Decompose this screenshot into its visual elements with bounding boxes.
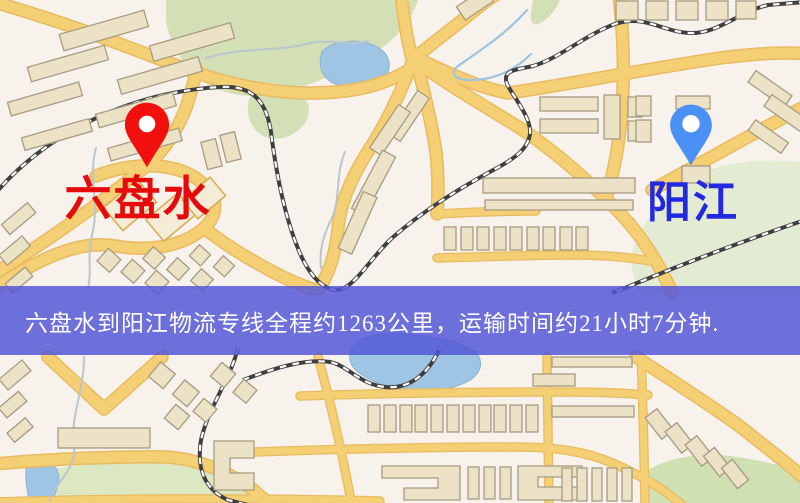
origin-label: 六盘水 (62, 177, 214, 224)
building (483, 178, 635, 193)
building (604, 95, 620, 139)
building (560, 227, 572, 250)
building (510, 227, 522, 250)
building (484, 467, 495, 499)
building (58, 428, 150, 448)
building (384, 405, 396, 432)
building (706, 1, 728, 20)
building (494, 227, 506, 250)
destination-label: 阳江 (644, 181, 742, 225)
building (676, 1, 698, 20)
building (636, 120, 651, 142)
building (431, 405, 443, 432)
building (552, 357, 632, 367)
route-info-banner: 六盘水到阳江物流专线全程约1263公里，运输时间约21小时7分钟. (0, 286, 800, 355)
pin-hole (139, 116, 156, 133)
map-canvas: 六盘水 阳江 六盘水到阳江物流专线全程约1263公里，运输时间约21小时7分钟. (0, 0, 800, 503)
building (463, 405, 475, 432)
building (616, 1, 638, 20)
building (552, 406, 634, 417)
building (526, 405, 538, 432)
building (444, 227, 456, 250)
pin-body (670, 105, 712, 166)
pin-body (125, 103, 169, 167)
building (494, 405, 506, 432)
building (543, 227, 555, 250)
building (461, 227, 473, 250)
building (447, 405, 459, 432)
building (540, 97, 598, 111)
pin-hole (682, 115, 699, 132)
building (510, 405, 522, 432)
map-image (0, 0, 800, 503)
building (736, 1, 756, 19)
building (468, 467, 479, 499)
building (477, 227, 489, 250)
building (562, 468, 572, 501)
building (577, 468, 587, 501)
building (533, 374, 575, 386)
building (415, 405, 427, 432)
building (479, 405, 491, 432)
building (527, 227, 539, 250)
building (607, 468, 617, 501)
route-info-text: 六盘水到阳江物流专线全程约1263公里，运输时间约21小时7分钟. (0, 304, 719, 338)
building (368, 405, 380, 432)
building (646, 1, 668, 20)
building (540, 119, 598, 133)
building (485, 200, 633, 210)
building (400, 405, 412, 432)
building (622, 468, 632, 501)
building (576, 227, 588, 250)
building (500, 467, 511, 499)
building (636, 96, 651, 116)
building (592, 468, 602, 501)
